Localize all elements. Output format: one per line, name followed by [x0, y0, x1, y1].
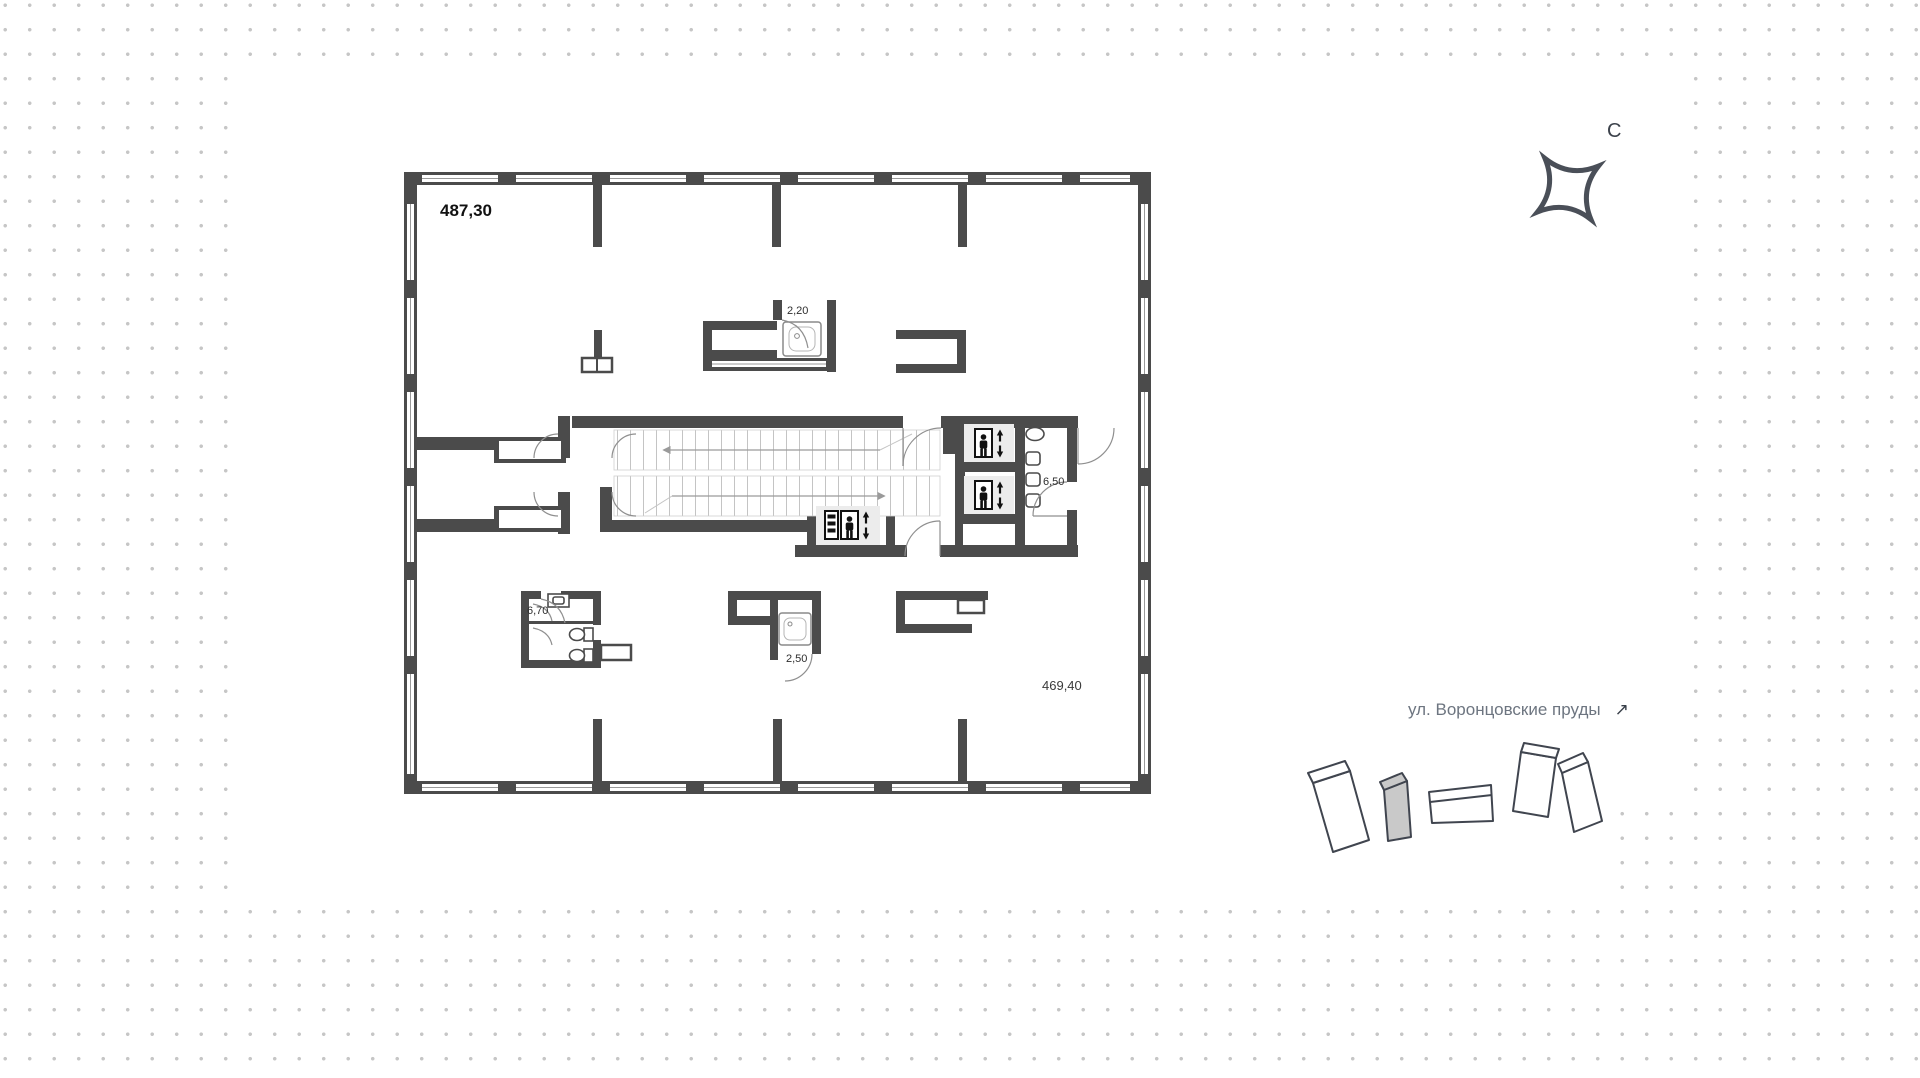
- compass-rose-icon: [1538, 159, 1599, 220]
- room-area-label-shower-bottom: 2,50: [786, 653, 807, 665]
- building-shape-5[interactable]: [1558, 753, 1602, 832]
- staircase: [614, 430, 940, 516]
- building-shape-1[interactable]: [1308, 761, 1369, 852]
- page-background: { "floor_plan": { "total_area": "487,30"…: [0, 0, 1920, 1078]
- room-area-label-wc-left: 6,70: [527, 605, 548, 617]
- room-area-label-wc-right: 6,50: [1043, 476, 1064, 488]
- floor-plan-svg: 487,30 469,40 2,20 6,50 6,70 2,50: [0, 0, 1920, 1078]
- street-link[interactable]: ул. Воронцовские пруды↗: [1408, 700, 1629, 720]
- room-area-label-shower-top: 2,20: [787, 305, 808, 317]
- building-shape-2-highlighted[interactable]: [1380, 773, 1411, 841]
- window-strip-top: [422, 175, 1130, 182]
- open-area-label: 469,40: [1042, 678, 1082, 693]
- elevator-passenger-1: [964, 424, 1014, 462]
- window-strip-bottom: [422, 784, 1130, 791]
- elevator-passenger-2: [964, 476, 1014, 514]
- building-shape-3[interactable]: [1429, 785, 1493, 823]
- elevator-freight: [816, 506, 880, 545]
- compass-north-label: С: [1607, 120, 1621, 143]
- total-area-label: 487,30: [440, 201, 492, 220]
- building-shape-4[interactable]: [1513, 743, 1559, 817]
- site-minimap: [1308, 743, 1602, 852]
- street-arrow-icon: ↗: [1615, 700, 1629, 719]
- street-label: ул. Воронцовские пруды: [1408, 700, 1601, 719]
